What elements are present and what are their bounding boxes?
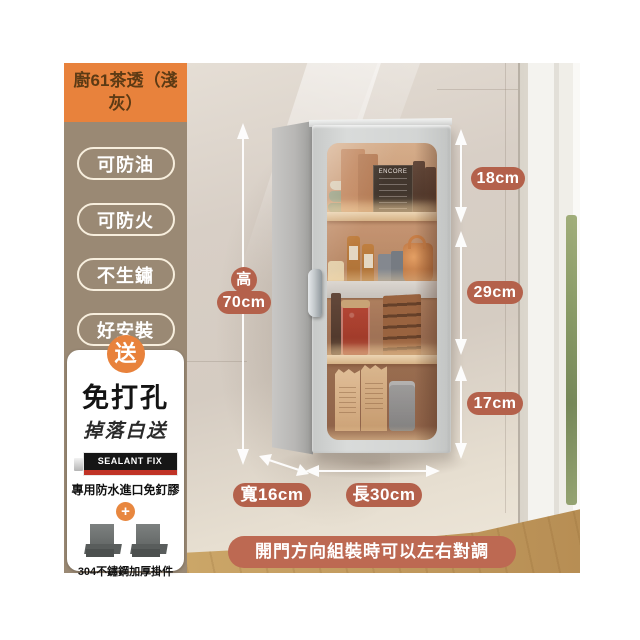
feature-pill-oilproof: 可防油 (77, 147, 175, 180)
product-title-badge: 廚61茶透（淺灰） (64, 63, 187, 122)
gift-card: 送 免打孔 掉落白送 SEALANT FIX 專用防水進口免釘膠 + 3 (67, 350, 184, 571)
hanger-brackets-image (67, 524, 184, 557)
tube-red-stripe (84, 470, 177, 475)
gift-subline: 掉落白送 (67, 416, 184, 443)
top-section-badge: 18cm (471, 167, 525, 190)
feature-pill-rustproof: 不生鏽 (77, 258, 175, 291)
gift-headline: 免打孔 (67, 376, 184, 415)
product-image: 廚61茶透（淺灰） 可防油 可防火 不生鏽 好安裝 送 免打孔 掉落白送 SEA… (0, 0, 640, 640)
bottom-banner: 開門方向組裝時可以左右對調 (228, 536, 516, 568)
height-char-badge: 高 (231, 267, 257, 293)
feature-pill-fireproof: 可防火 (77, 203, 175, 236)
hardware-name-label: 304不鏽鋼加厚掛件 (67, 563, 184, 579)
sealant-tube-image: SEALANT FIX (74, 452, 178, 476)
middle-section-badge: 29cm (467, 281, 523, 304)
tube-cap (74, 458, 83, 471)
photo-scene: ENCORE (187, 63, 580, 573)
sidebar: 廚61茶透（淺灰） 可防油 可防火 不生鏽 好安裝 送 免打孔 掉落白送 SEA… (64, 63, 187, 573)
height-value-badge: 70cm (217, 291, 271, 314)
depth-badge: 寬16cm (233, 483, 311, 507)
plus-icon: + (116, 502, 135, 521)
bracket-left (85, 524, 121, 557)
width-badge: 長30cm (346, 483, 422, 507)
bracket-right (131, 524, 167, 557)
bottom-section-badge: 17cm (467, 392, 523, 415)
gift-badge-icon: 送 (107, 335, 145, 373)
glue-brand-label: SEALANT FIX (84, 453, 177, 470)
tube-body: SEALANT FIX (83, 452, 178, 476)
glue-name-label: 專用防水進口免釘膠 (67, 481, 184, 498)
